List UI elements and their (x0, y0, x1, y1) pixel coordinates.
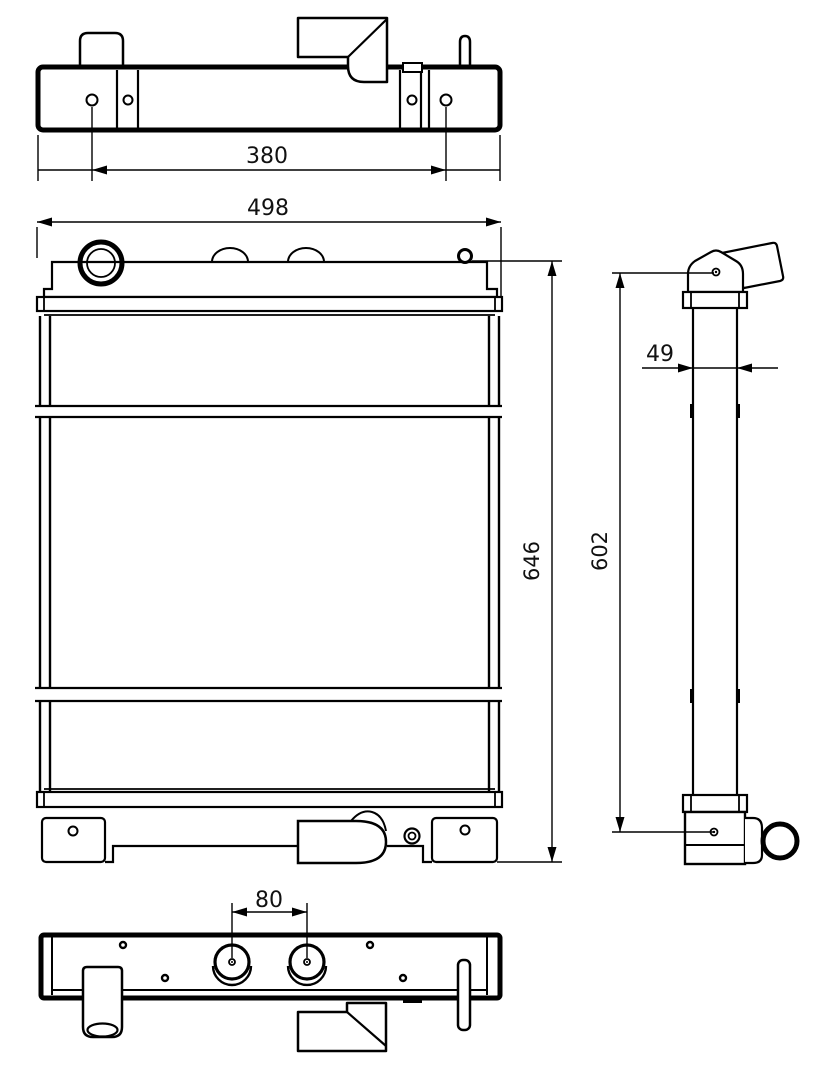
top-view-notch (403, 63, 422, 72)
front-upper-flange (37, 297, 502, 311)
front-cross-brace-lower (35, 688, 502, 701)
tank-top-bumps (212, 248, 324, 262)
side-bottom-block (685, 812, 745, 864)
dimension-646: 646 (472, 261, 562, 862)
dim-text-602: 602 (588, 531, 612, 571)
dimension-49: 49 (642, 342, 778, 373)
top-view-inlet-stub (80, 33, 123, 68)
bottom-hole-4 (400, 975, 406, 981)
bottom-small-tube (458, 960, 470, 1030)
dim-arrow-right (431, 166, 446, 175)
radiator-drawing-canvas: 380 498 (0, 0, 824, 1078)
mount-foot-right-hole (461, 826, 470, 835)
top-view-hole-left-outer (87, 95, 98, 106)
mount-foot-left-hole (69, 827, 78, 836)
dim-text-80: 80 (255, 888, 283, 913)
bottom-hole-1 (120, 942, 126, 948)
top-view-hole-right-outer (441, 95, 452, 106)
mount-foot-left (42, 818, 105, 862)
side-upper-flange (683, 292, 747, 308)
bottom-pipe-stub-opening (88, 1024, 118, 1037)
front-cross-brace-upper (35, 406, 502, 417)
bottom-hole-3 (367, 942, 373, 948)
bottom-bracket (298, 1003, 386, 1051)
dim-text-498: 498 (247, 196, 289, 221)
bottom-hole-2 (162, 975, 168, 981)
top-view: 380 (38, 18, 500, 181)
drain-plug (405, 829, 420, 844)
dim-text-646: 646 (520, 541, 544, 581)
side-lower-flange (683, 795, 747, 812)
top-view-tank-outline (38, 67, 500, 130)
dim-arrow-left (92, 166, 107, 175)
side-view: 49 602 (588, 243, 797, 864)
top-view-hole-left-inner (124, 96, 133, 105)
outlet-pipe-neck (745, 818, 762, 863)
top-view-hole-right-inner (408, 96, 417, 105)
technical-drawing-page: 380 498 (0, 0, 824, 1078)
side-weld-ticks (692, 404, 738, 703)
front-view: 498 (35, 196, 562, 863)
tank-knob (459, 250, 472, 263)
top-view-small-tube (460, 36, 470, 67)
bottom-notch (403, 997, 422, 1003)
outlet-pipe-front (298, 821, 386, 863)
dim-text-49: 49 (646, 342, 674, 367)
bottom-view: 80 (41, 888, 500, 1051)
side-column (693, 308, 737, 795)
dim-text-380: 380 (246, 144, 288, 169)
front-side-channels (40, 316, 499, 791)
outlet-pipe-end (763, 824, 797, 858)
front-lower-flange (37, 792, 502, 807)
